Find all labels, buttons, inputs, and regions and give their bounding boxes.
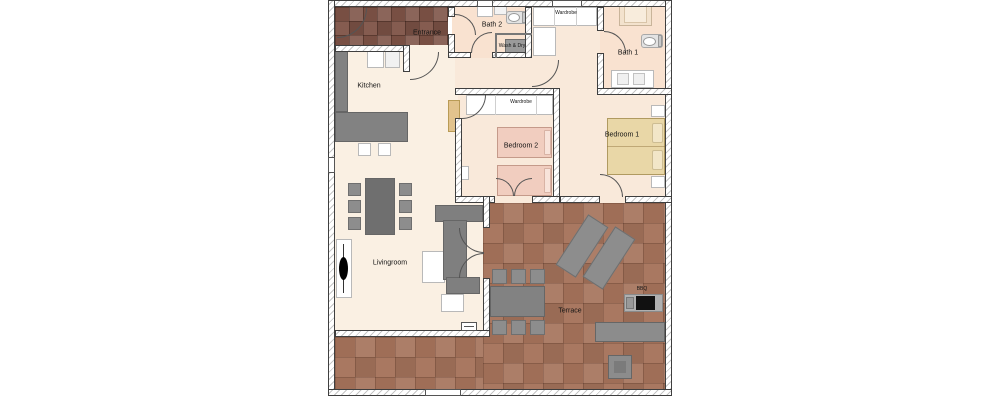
livingroom-label: Livingroom [373, 260, 407, 267]
wall-bedroom1-south [560, 196, 600, 203]
pillow [652, 150, 663, 170]
planter-inner [614, 361, 626, 373]
dining-chair [399, 183, 412, 196]
bbq-knobs [626, 297, 634, 309]
pillow [544, 168, 551, 193]
hall-closet-left [533, 27, 556, 56]
nightstand [651, 105, 665, 117]
wall-living-east [483, 196, 490, 228]
terrace-floor-strip [335, 337, 483, 390]
wall-bedroom2-south [532, 196, 560, 203]
wash-dry-label: Wash & Dry [499, 43, 525, 49]
wall-bath1-south [597, 88, 672, 95]
kitchen-stool [378, 143, 391, 156]
kitchen-counter-left [335, 50, 348, 112]
wall-vent-line [464, 326, 474, 327]
pillow [544, 130, 551, 155]
bbq-grate [636, 296, 655, 310]
closet-divider [536, 95, 537, 115]
kitchen-label: Kitchen [357, 83, 380, 90]
vanity-basin [617, 73, 629, 85]
wall-bedroom2-north [455, 88, 560, 95]
bath2-label: Bath 2 [482, 22, 502, 29]
terrace-chair [492, 320, 507, 335]
wall-outer-bottom [328, 389, 672, 396]
dining-chair [399, 200, 412, 213]
terrace-chair [511, 269, 526, 284]
floor-plan: Entrance Kitchen Bath 2 Wash & Dry Wardr… [0, 0, 1000, 400]
mattress-seam [607, 146, 665, 147]
wall-bedroom2-east [553, 88, 560, 203]
dining-chair [348, 200, 361, 213]
side-table [441, 294, 464, 312]
window [328, 157, 335, 173]
toilet-bowl [643, 37, 656, 46]
dining-table [365, 178, 395, 235]
wall-washdry-partition [495, 33, 532, 35]
wall-bath2-south [448, 52, 471, 58]
wall-living-south [335, 330, 490, 337]
bath1-label: Bath 1 [618, 50, 638, 57]
entrance-label: Entrance [413, 30, 441, 37]
bbq-label: BBQ [637, 286, 648, 292]
terrace-table [490, 286, 545, 317]
terrace-gate-opening [425, 389, 461, 396]
closet-divider [495, 95, 496, 115]
wall-bedroom2-west [455, 118, 462, 203]
wall-bath2-west [448, 7, 455, 17]
window [552, 0, 582, 7]
kitchen-stool [358, 143, 371, 156]
wall-bedroom1-south [625, 196, 672, 203]
wall-kitchen-north [335, 45, 410, 52]
sofa-bottom-arm [446, 277, 480, 294]
tv-screen [339, 257, 348, 280]
shower-tray [624, 6, 647, 23]
terrace-chair [492, 269, 507, 284]
terrace-chair [530, 320, 545, 335]
dining-chair [399, 217, 412, 230]
dining-chair [348, 183, 361, 196]
bedroom2-label: Bedroom 2 [504, 143, 538, 150]
bedroom2-wardrobe-label: Wardrobe [510, 99, 532, 105]
wall-outer-top [328, 0, 672, 7]
kitchen-island-counter [335, 112, 408, 142]
wall-washdry-partition [495, 33, 497, 58]
coffee-table [422, 251, 445, 283]
hall-wardrobe-label: Wardrobe [555, 10, 577, 16]
bedroom1-label: Bedroom 1 [605, 132, 639, 139]
nightstand [651, 176, 665, 188]
wall-kitchen-stub [403, 45, 410, 72]
terrace-chair [511, 320, 526, 335]
garden-bench [595, 322, 665, 342]
window [477, 0, 493, 7]
wall-outer-left [328, 0, 335, 396]
toilet-tank [658, 35, 662, 47]
terrace-chair [530, 269, 545, 284]
vanity-basin [633, 73, 645, 85]
dining-chair [348, 217, 361, 230]
terrace-label: Terrace [558, 308, 581, 315]
wall-bath1-west [597, 7, 604, 31]
pillow [652, 123, 663, 143]
wall-living-east [483, 278, 490, 337]
toilet-bowl [508, 13, 520, 22]
